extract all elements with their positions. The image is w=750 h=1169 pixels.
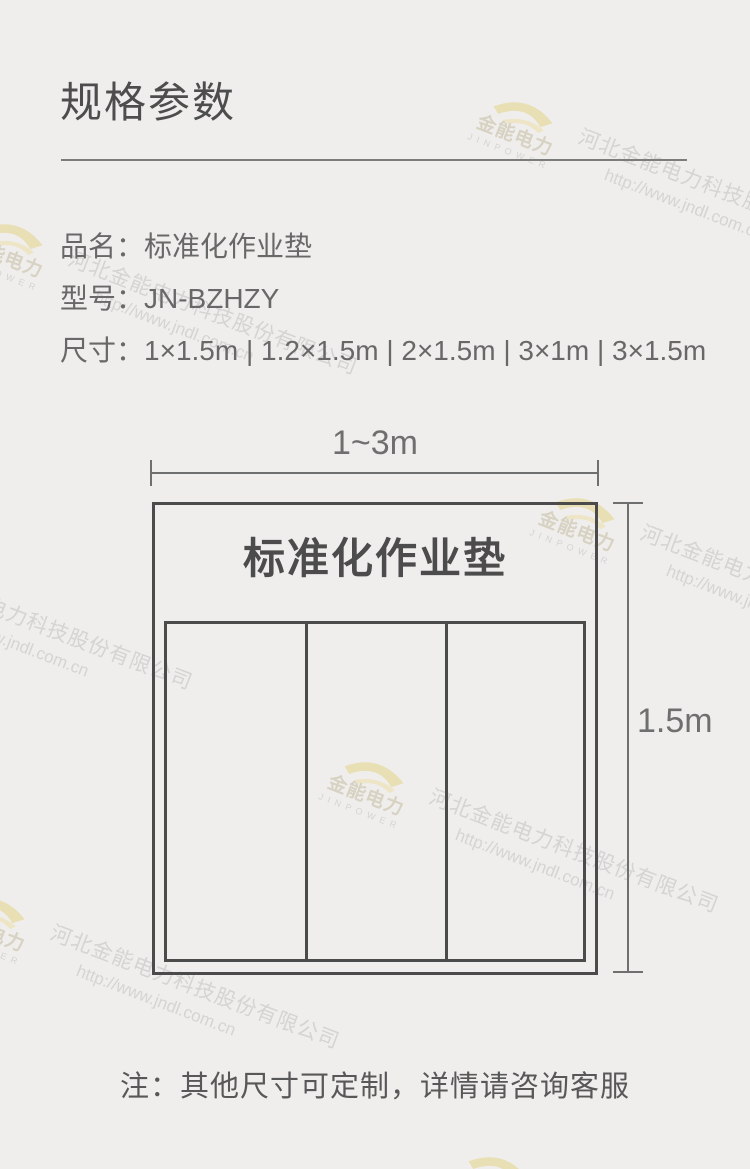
spec-label: 尺寸：	[60, 335, 144, 366]
brand-swoosh-icon	[457, 1135, 543, 1169]
brand-name-cn: 金能电力	[474, 113, 556, 160]
page-title: 规格参数	[60, 82, 236, 124]
watermark-text: 河北金能电力科技股份有限公司 http://www.jndl.com.cn	[628, 521, 750, 677]
spec-label: 品名：	[60, 231, 144, 262]
spec-value: JN-BZHZY	[144, 283, 279, 314]
brand-name-cn: 金能电力	[0, 909, 28, 956]
spec-row-size: 尺寸：1×1.5m | 1.2×1.5m | 2×1.5m | 3×1m | 3…	[60, 336, 706, 366]
mat-panel-divider	[305, 624, 308, 959]
mat-title: 标准化作业垫	[155, 538, 595, 580]
dimension-tick	[613, 502, 643, 504]
custom-note: 注：其他尺寸可定制，详情请咨询客服	[0, 1063, 750, 1105]
width-dimension-line	[151, 472, 599, 474]
spec-row-product-name: 品名：标准化作业垫	[60, 232, 706, 262]
brand-logo: 金能电力 JINPOWER	[0, 874, 44, 970]
watermark-url: http://www.jndl.com.cn	[73, 961, 332, 1077]
brand-name-en: JINPOWER	[465, 130, 552, 174]
dimension-tick	[597, 460, 599, 486]
brand-name-en: JINPOWER	[0, 926, 24, 970]
spec-value: 标准化作业垫	[144, 231, 312, 262]
page-container: 金能电力 JINPOWER 河北金能电力科技股份有限公司 http://www.…	[0, 0, 750, 1169]
height-dimension-line	[627, 502, 629, 973]
title-underline	[61, 159, 687, 161]
watermark: 金能电力 JINPOWER 河北金能电力科技股份有限公司 http://www.…	[440, 1133, 750, 1169]
brand-logo: 金能电力 JINPOWER	[0, 200, 62, 296]
spec-value: 1×1.5m | 1.2×1.5m | 2×1.5m | 3×1m | 3×1.…	[144, 335, 706, 366]
width-dimension-label: 1~3m	[152, 426, 598, 460]
dimension-tick	[150, 460, 152, 486]
watermark-company: 河北金能电力科技股份有限公司	[636, 521, 750, 655]
height-dimension-label: 1.5m	[637, 704, 713, 738]
spec-row-model: 型号：JN-BZHZY	[60, 284, 706, 314]
watermark-url: http://www.jndl.com.cn	[663, 561, 750, 677]
brand-name-cn: 金能电力	[0, 235, 46, 282]
brand-name-en: JINPOWER	[0, 252, 42, 296]
mat-outline: 标准化作业垫	[152, 502, 598, 975]
mat-panel-divider	[445, 624, 448, 959]
brand-logo: 金能电力 JINPOWER	[440, 1133, 547, 1169]
brand-swoosh-icon	[482, 80, 568, 142]
spec-label: 型号：	[60, 283, 144, 314]
spec-list: 品名：标准化作业垫 型号：JN-BZHZY 尺寸：1×1.5m | 1.2×1.…	[60, 232, 706, 388]
brand-swoosh-icon	[0, 876, 39, 938]
brand-swoosh-icon	[0, 202, 57, 264]
dimension-tick	[613, 971, 643, 973]
mat-inner-outline	[164, 621, 586, 962]
